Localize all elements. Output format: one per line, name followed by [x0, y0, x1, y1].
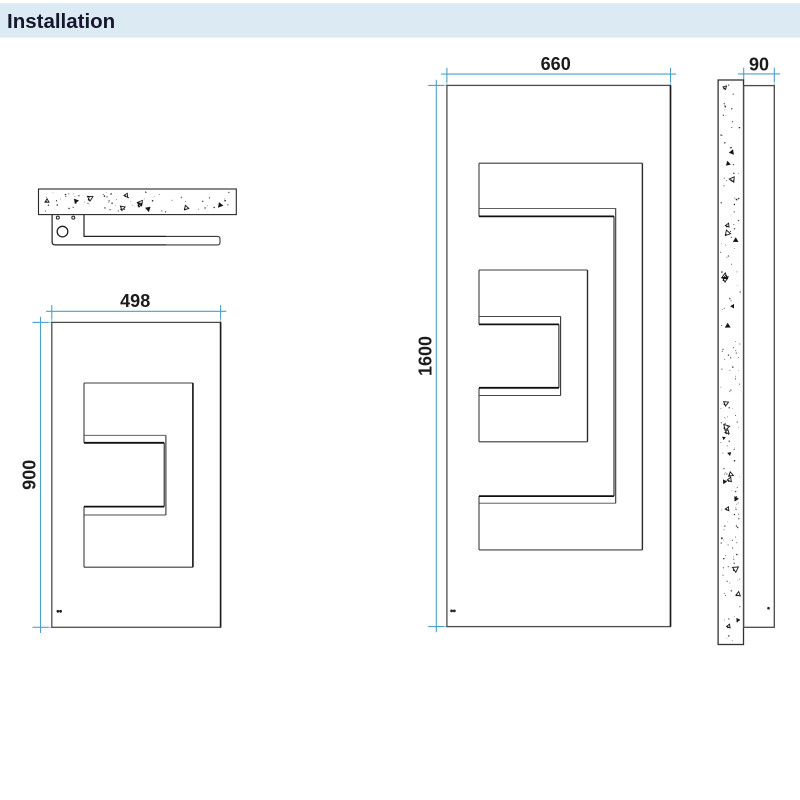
svg-text:1600: 1600 [416, 336, 436, 376]
svg-text:900: 900 [20, 460, 40, 490]
svg-text:Installation: Installation [7, 10, 115, 33]
svg-text:660: 660 [541, 54, 571, 74]
svg-text:498: 498 [120, 291, 150, 311]
svg-text:90: 90 [749, 55, 769, 75]
